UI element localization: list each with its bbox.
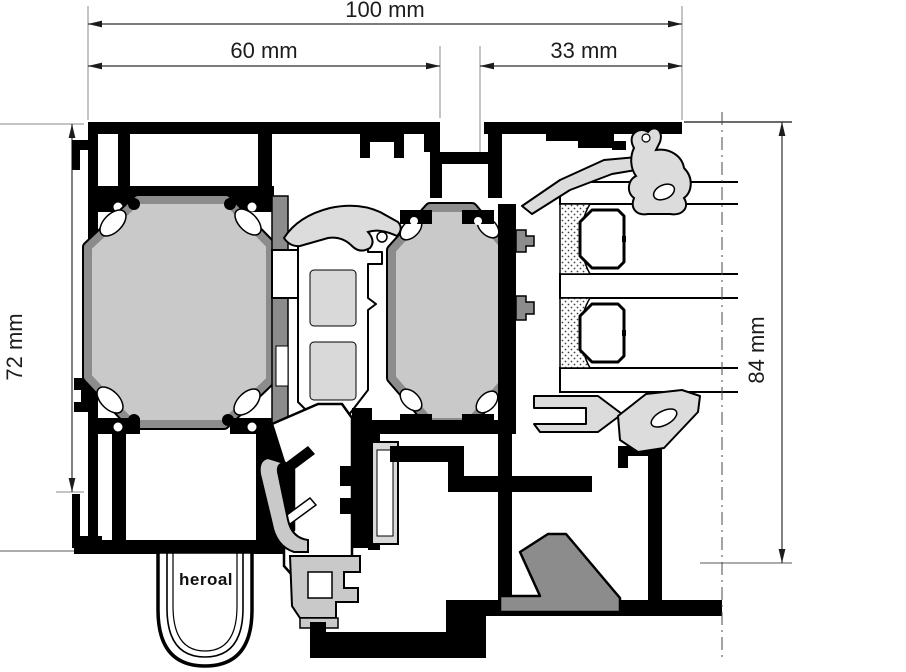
frame-glazing-bead bbox=[272, 196, 401, 432]
dimension-60mm: 60 mm bbox=[88, 38, 440, 66]
frame-hook-top-left bbox=[72, 140, 88, 170]
spacer-bar-2 bbox=[580, 304, 624, 362]
frame-insulation-chamber bbox=[88, 198, 270, 426]
dimension-label-72mm: 72 mm bbox=[2, 313, 27, 380]
sash-insulation-chamber bbox=[392, 208, 504, 428]
dimension-label-100mm: 100 mm bbox=[345, 0, 424, 22]
frame-top-bar bbox=[88, 122, 440, 134]
heroal-logo-badge: heroal bbox=[158, 552, 252, 666]
dimension-label-84mm: 84 mm bbox=[744, 316, 769, 383]
profile-section-drawing: 100 mm 60 mm 33 mm 72 mm 84 mm bbox=[0, 0, 906, 672]
glazing-support-block bbox=[500, 534, 620, 612]
glazing-gasket-bottom-fork bbox=[534, 396, 622, 432]
dimension-84mm: 84 mm bbox=[744, 122, 782, 563]
dimension-72mm: 72 mm bbox=[2, 124, 72, 492]
sash-top-cap bbox=[430, 126, 502, 198]
dimension-33mm: 33 mm bbox=[480, 38, 682, 66]
mushroom-gasket bbox=[629, 128, 691, 214]
hardware-mechanism bbox=[260, 404, 592, 658]
dimension-100mm: 100 mm bbox=[88, 0, 682, 24]
sash-glazing-wall bbox=[498, 204, 516, 426]
heroal-logo-text: heroal bbox=[179, 570, 233, 589]
dimension-label-60mm: 60 mm bbox=[230, 38, 297, 63]
spacer-bar-1 bbox=[580, 210, 624, 268]
frame-interlock-clip bbox=[360, 134, 440, 158]
technical-drawing-canvas: 100 mm 60 mm 33 mm 72 mm 84 mm bbox=[0, 0, 906, 672]
dimension-label-33mm: 33 mm bbox=[550, 38, 617, 63]
